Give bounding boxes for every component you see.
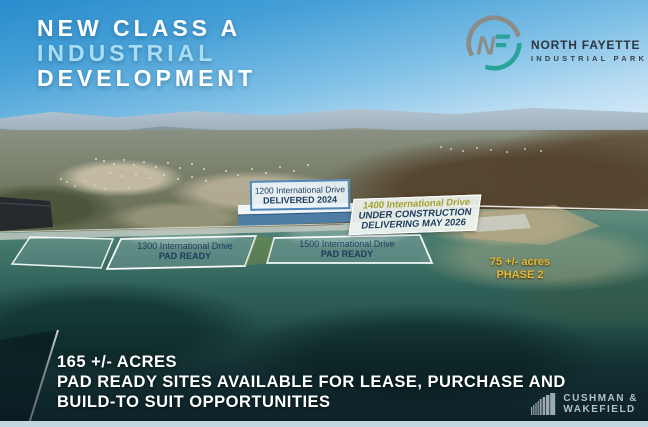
site-1200-status: DELIVERED 2024 — [254, 194, 346, 206]
site-1300-address: 1300 International Drive — [122, 241, 248, 251]
park-subtitle: INDUSTRIAL PARK — [531, 54, 647, 63]
cw-bars-icon — [531, 391, 557, 417]
nf-monogram-icon: N — [464, 13, 524, 73]
park-name: NORTH FAYETTE — [531, 38, 647, 52]
title-line-3: DEVELOPMENT — [37, 66, 256, 91]
park-logo: N NORTH FAYETTE INDUSTRIAL PARK — [464, 13, 647, 73]
bottom-accent-strip — [0, 421, 648, 427]
site-label-1500: 1500 International Drive PAD READY — [282, 239, 412, 259]
title-line-2: INDUSTRIAL — [37, 41, 256, 66]
monogram-f-bar-mid — [496, 43, 506, 47]
phase2-name: PHASE 2 — [468, 269, 572, 282]
title-line-1: NEW CLASS A — [37, 16, 256, 41]
site-label-1300: 1300 International Drive PAD READY — [122, 241, 248, 261]
site-label-1200: 1200 International Drive DELIVERED 2024 — [250, 179, 351, 211]
site-1400-delivery: DELIVERING MAY 2026 — [353, 218, 474, 232]
broker-name-line2: WAKEFIELD — [563, 404, 638, 415]
site-1500-address: 1500 International Drive — [282, 239, 412, 249]
marketing-flyer: NEW CLASS A INDUSTRIAL DEVELOPMENT N NOR… — [0, 0, 648, 427]
existing-building — [0, 197, 53, 231]
footer-copy: 165 +/- ACRES PAD READY SITES AVAILABLE … — [57, 352, 566, 412]
page-title: NEW CLASS A INDUSTRIAL DEVELOPMENT — [37, 16, 256, 91]
phase2-acreage: 75 +/- acres — [468, 256, 572, 269]
park-logo-wordmark: NORTH FAYETTE INDUSTRIAL PARK — [531, 38, 647, 63]
broker-name-line1: CUSHMAN & — [563, 393, 638, 404]
footer-opportunities: BUILD-TO SUIT OPPORTUNITIES — [57, 392, 566, 412]
broker-logo: CUSHMAN & WAKEFIELD — [531, 391, 638, 417]
footer-availability: PAD READY SITES AVAILABLE FOR LEASE, PUR… — [57, 372, 566, 392]
footer-acreage: 165 +/- ACRES — [57, 352, 566, 372]
monogram-f-bar-top — [496, 35, 510, 39]
site-label-1400: 1400 International Drive UNDER CONSTRUCT… — [348, 194, 481, 235]
site-1300-status: PAD READY — [122, 251, 248, 261]
site-1500-status: PAD READY — [282, 249, 412, 259]
broker-wordmark: CUSHMAN & WAKEFIELD — [563, 393, 638, 415]
monogram-n: N — [476, 30, 496, 60]
phase2-label: 75 +/- acres PHASE 2 — [468, 256, 572, 282]
pad-outline-left-partial — [12, 237, 113, 268]
